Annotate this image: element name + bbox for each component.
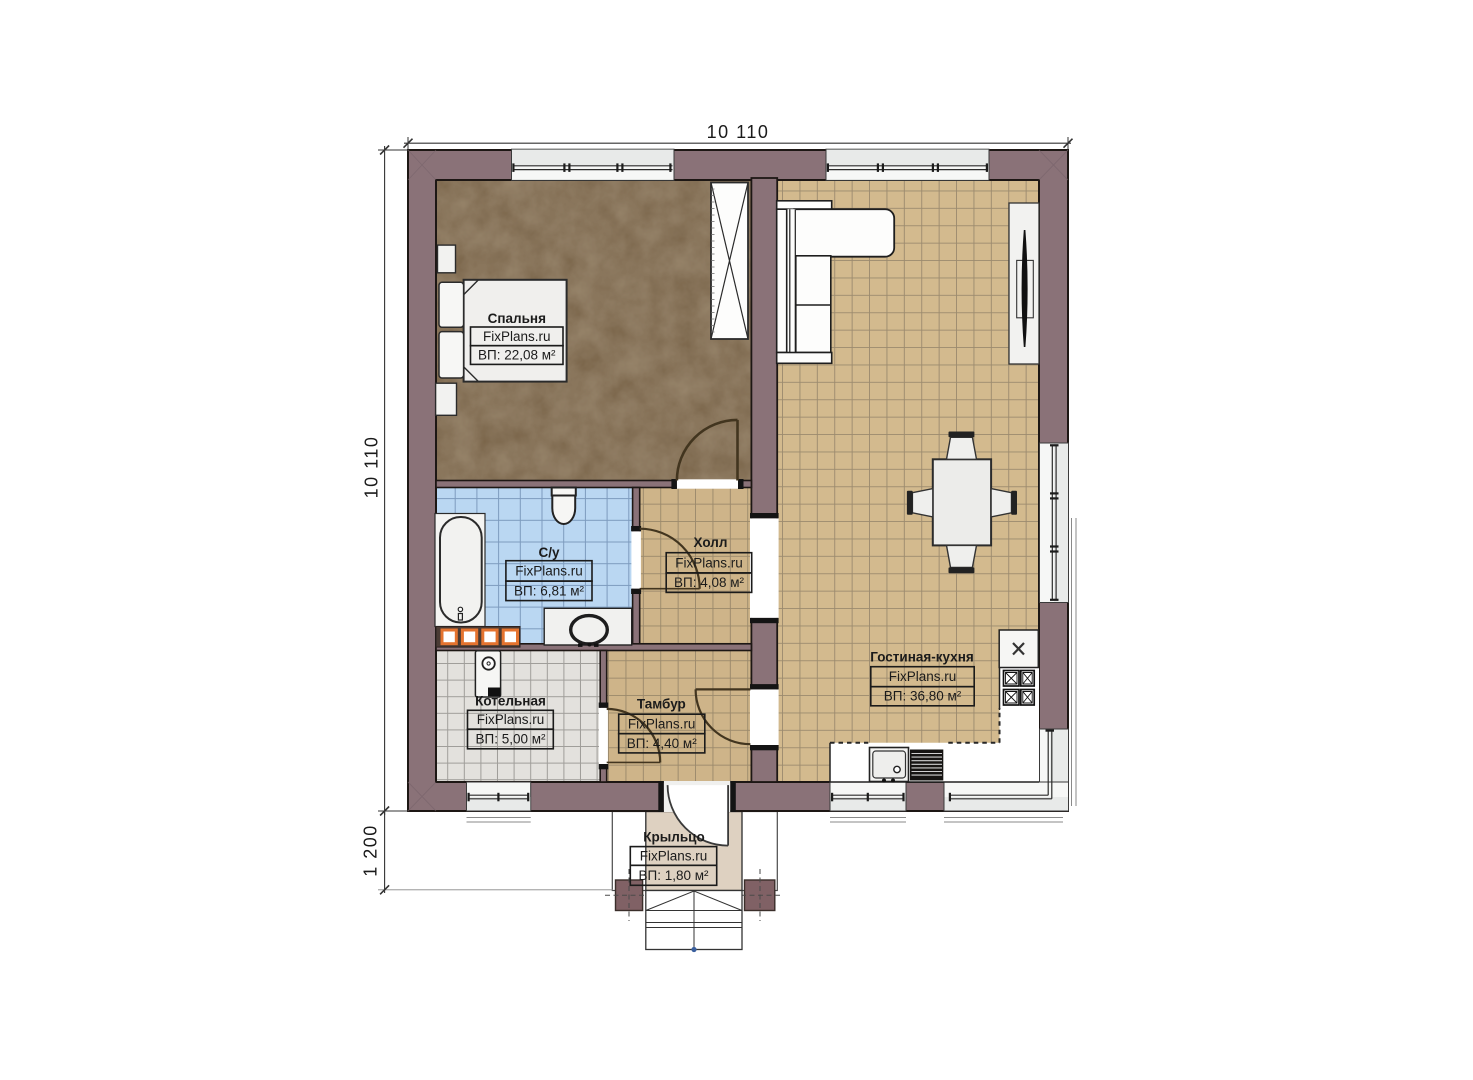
- svg-text:Котельная: Котельная: [475, 694, 546, 709]
- svg-text:ВП: 4,08 м²: ВП: 4,08 м²: [674, 575, 745, 590]
- svg-text:Гостиная-кухня: Гостиная-кухня: [870, 649, 973, 664]
- svg-text:FixPlans.ru: FixPlans.ru: [477, 712, 545, 727]
- svg-text:Крыльцо: Крыльцо: [643, 830, 704, 845]
- svg-text:ВП: 22,08 м²: ВП: 22,08 м²: [478, 348, 556, 363]
- svg-text:FixPlans.ru: FixPlans.ru: [889, 669, 957, 684]
- svg-text:ВП: 5,00 м²: ВП: 5,00 м²: [475, 732, 546, 747]
- svg-text:10 110: 10 110: [362, 436, 382, 499]
- svg-text:ВП: 36,80 м²: ВП: 36,80 м²: [884, 689, 962, 704]
- svg-text:FixPlans.ru: FixPlans.ru: [515, 563, 583, 578]
- svg-text:ВП: 6,81 м²: ВП: 6,81 м²: [514, 583, 585, 598]
- svg-text:ВП: 4,40 м²: ВП: 4,40 м²: [627, 736, 698, 751]
- svg-text:С/у: С/у: [538, 545, 560, 560]
- svg-text:Тамбур: Тамбур: [637, 697, 686, 712]
- svg-text:FixPlans.ru: FixPlans.ru: [640, 848, 708, 863]
- svg-text:FixPlans.ru: FixPlans.ru: [675, 555, 743, 570]
- svg-text:Холл: Холл: [694, 535, 728, 550]
- svg-text:Спальня: Спальня: [488, 311, 546, 326]
- svg-text:10 110: 10 110: [707, 122, 770, 142]
- svg-text:ВП: 1,80 м²: ВП: 1,80 м²: [638, 868, 709, 883]
- svg-text:FixPlans.ru: FixPlans.ru: [628, 716, 696, 731]
- svg-text:1 200: 1 200: [361, 824, 381, 877]
- svg-text:FixPlans.ru: FixPlans.ru: [483, 329, 551, 344]
